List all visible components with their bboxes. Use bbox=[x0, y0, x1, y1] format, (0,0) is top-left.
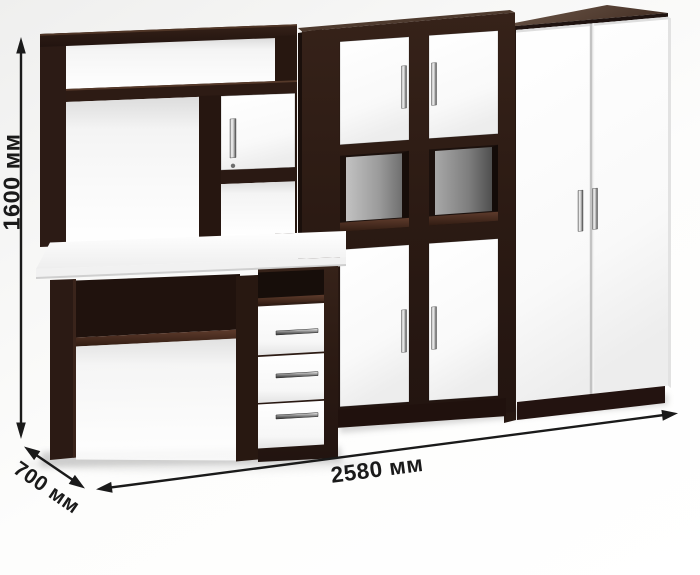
hutch-left-opening bbox=[66, 97, 199, 245]
cabinet-bottom-handle-left-icon bbox=[402, 310, 407, 353]
desk-back-panel bbox=[76, 274, 240, 338]
cabinet-top-door-left bbox=[340, 37, 409, 145]
arrow-right-icon bbox=[661, 410, 678, 421]
drawer-2 bbox=[258, 353, 324, 403]
hutch-lower-opening bbox=[221, 181, 295, 236]
hutch-left-panel bbox=[40, 33, 66, 247]
drawer-pedestal bbox=[236, 266, 338, 462]
wardrobe-handle-left-icon bbox=[578, 190, 583, 231]
pedestal-left-side bbox=[236, 275, 258, 462]
arrow-up-left-icon bbox=[24, 447, 40, 461]
cabinet-cubby-left bbox=[340, 151, 409, 232]
cabinet-top-handle-right-icon bbox=[432, 63, 437, 106]
desk-hutch bbox=[40, 24, 297, 247]
hutch-door-lock-icon bbox=[231, 164, 235, 168]
furniture-scene: 1600 мм 2580 мм 700 мм bbox=[0, 0, 700, 575]
desk-kneehole bbox=[76, 339, 236, 461]
desk bbox=[36, 231, 346, 462]
cabinet-top-handle-left-icon bbox=[402, 66, 407, 109]
desk-left-panel bbox=[50, 279, 76, 460]
dimension-height: 1600 мм bbox=[0, 37, 26, 439]
hutch-top-opening bbox=[66, 38, 275, 89]
furniture-product-image: 1600 мм 2580 мм 700 мм bbox=[0, 0, 700, 575]
wardrobe-right-edge bbox=[668, 17, 671, 388]
wardrobe bbox=[504, 5, 671, 423]
wardrobe-door-gap bbox=[590, 23, 593, 394]
cabinet-bottom-handle-right-icon bbox=[432, 307, 437, 350]
cabinet-top-door-right bbox=[429, 31, 498, 139]
pedestal-cubby bbox=[258, 270, 324, 305]
hutch-divider bbox=[199, 95, 221, 240]
arrow-down-icon bbox=[16, 423, 26, 440]
arrow-down-right-icon bbox=[69, 475, 85, 489]
drawer-3 bbox=[258, 401, 324, 449]
arrow-up-icon bbox=[16, 37, 26, 54]
cabinet-cubby-right bbox=[429, 145, 498, 226]
cabinet-bottom-door-left bbox=[340, 245, 409, 407]
cabinet-bottom-door-right bbox=[429, 239, 498, 401]
arrow-left-icon bbox=[96, 482, 113, 493]
hutch-lower-shelf bbox=[221, 167, 295, 184]
hutch-door-handle-icon bbox=[230, 119, 236, 158]
height-label: 1600 мм bbox=[0, 133, 25, 230]
wardrobe-handle-right-icon bbox=[593, 188, 598, 229]
